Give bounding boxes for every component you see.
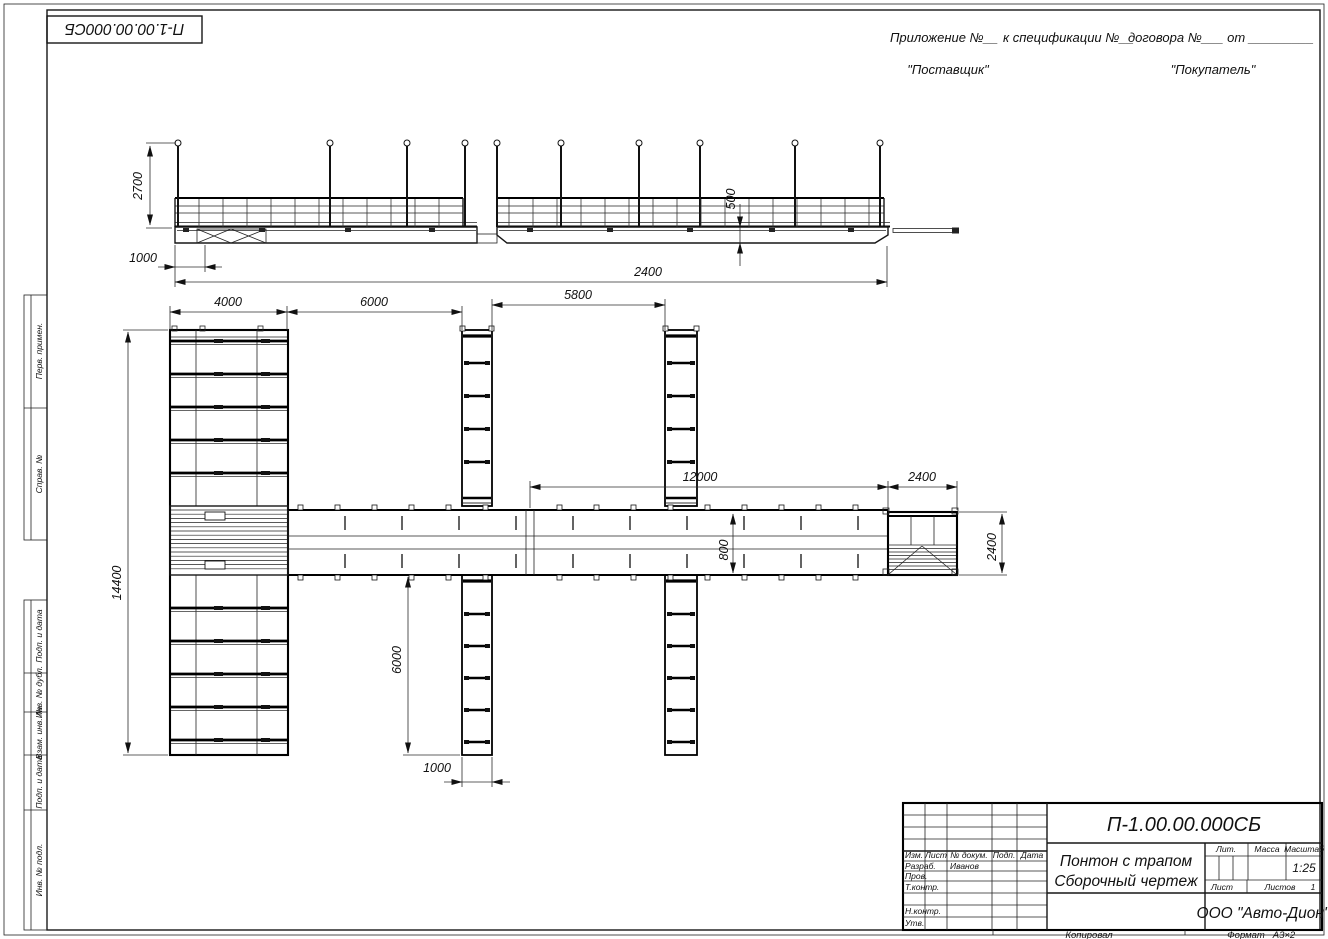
tb-company: ООО "Авто-Дион" [1197, 905, 1328, 922]
dimensions: 2700 1000 2400 500 4000 6000 5800 [110, 143, 1007, 787]
tb-label-massa: Масса [1254, 844, 1279, 854]
drawing-sheet: П-1.00.00.000СБ Приложение №__ к специфи… [0, 0, 1328, 939]
tb-name-line1: Понтон с трапом [1060, 853, 1193, 870]
tb-razrab-name: Иванов [950, 861, 979, 871]
margin-label-perv-primen: Перв. примен. [34, 323, 44, 380]
cross-brace-float [197, 229, 266, 243]
contract-note: договора №___ от _________ [1128, 30, 1314, 45]
margin-label-inv-podl: Инв. № подл. [34, 844, 44, 897]
tb-col-podp: Подп. [993, 850, 1016, 860]
footer-format-label: Формат [1227, 930, 1265, 939]
tb-scale-value: 1:25 [1292, 861, 1316, 875]
corner-doc-number: П-1.00.00.000СБ [65, 20, 185, 37]
sheet-frame [4, 4, 1324, 935]
buyer-label: "Покупатель" [1171, 62, 1257, 77]
dim-finger-width: 1000 [423, 761, 451, 775]
tb-col-izm: Изм. [905, 850, 923, 860]
top-left-doc-stamp: П-1.00.00.000СБ [47, 16, 202, 43]
end-platform [883, 508, 958, 575]
finger-piers [460, 326, 699, 755]
dim-walkway-length: 12000 [683, 470, 718, 484]
main-walkway [288, 505, 888, 580]
tb-label-list: Лист [1210, 882, 1233, 892]
left-margin-stamps: Перв. примен. Справ. № Подп. и дата Инв.… [24, 295, 47, 930]
tb-col-list: Лист [924, 850, 947, 860]
dim-left-block-width: 4000 [214, 295, 242, 309]
tb-row-tkontr: Т.контр. [905, 882, 939, 892]
side-posts-and-stanchions [175, 140, 883, 232]
appendix-note: Приложение №__ [890, 30, 998, 45]
margin-label-podp-data-1: Подп. и дата [34, 609, 44, 662]
margin-label-sprav-n: Справ. № [34, 455, 44, 494]
dim-finger-length: 6000 [390, 646, 404, 674]
dim-walkway-width: 800 [717, 540, 731, 561]
dim-bay-1: 6000 [360, 295, 388, 309]
tb-doc-number: П-1.00.00.000СБ [1107, 814, 1261, 836]
dim-left-block-length: 14400 [110, 566, 124, 601]
tb-row-prov: Пров. [905, 871, 927, 881]
dim-bow-offset: 1000 [129, 251, 157, 265]
title-block: П-1.00.00.000СБ Понтон с трапом Сборочны… [903, 803, 1328, 930]
tb-label-masshtab: Масштаб [1284, 844, 1325, 854]
tb-label-listov: Листов [1264, 882, 1297, 892]
footer-strip: Копировал Формат А3×2 [993, 930, 1296, 939]
dim-overall-length: 2400 [633, 265, 662, 279]
footer-format-value: А3×2 [1272, 930, 1296, 939]
tb-name-line2: Сборочный чертеж [1054, 873, 1199, 890]
supplier-label: "Поставщик" [907, 62, 990, 77]
dim-freeboard: 500 [724, 189, 738, 210]
plan-view [170, 326, 958, 755]
tb-col-data: Дата [1020, 850, 1044, 860]
footer-kopiroval: Копировал [1065, 930, 1113, 939]
tb-col-doc: № докум. [950, 850, 987, 860]
tb-listov-value: 1 [1311, 882, 1316, 892]
dim-end-platform-depth: 2400 [985, 533, 999, 562]
left-pier-block [170, 326, 288, 755]
margin-label-vzam-inv: Взам. инв. № [34, 707, 44, 760]
tb-row-razrab: Разраб. [905, 861, 936, 871]
margin-label-podp-data-2: Подп. и дата [34, 755, 44, 808]
tb-row-nkontr: Н.контр. [905, 906, 941, 916]
header-note: Приложение №__ к спецификации №__ догово… [890, 30, 1314, 77]
dim-end-platform-width: 2400 [907, 470, 936, 484]
to-spec-note: к спецификации №__ [1003, 30, 1134, 45]
gangway-side [893, 228, 959, 234]
tb-row-utv: Утв. [904, 918, 924, 928]
side-elevation-view [175, 140, 959, 243]
tb-label-lit: Лит. [1215, 844, 1236, 854]
dim-post-height: 2700 [131, 172, 145, 201]
dim-bay-2: 5800 [564, 288, 592, 302]
